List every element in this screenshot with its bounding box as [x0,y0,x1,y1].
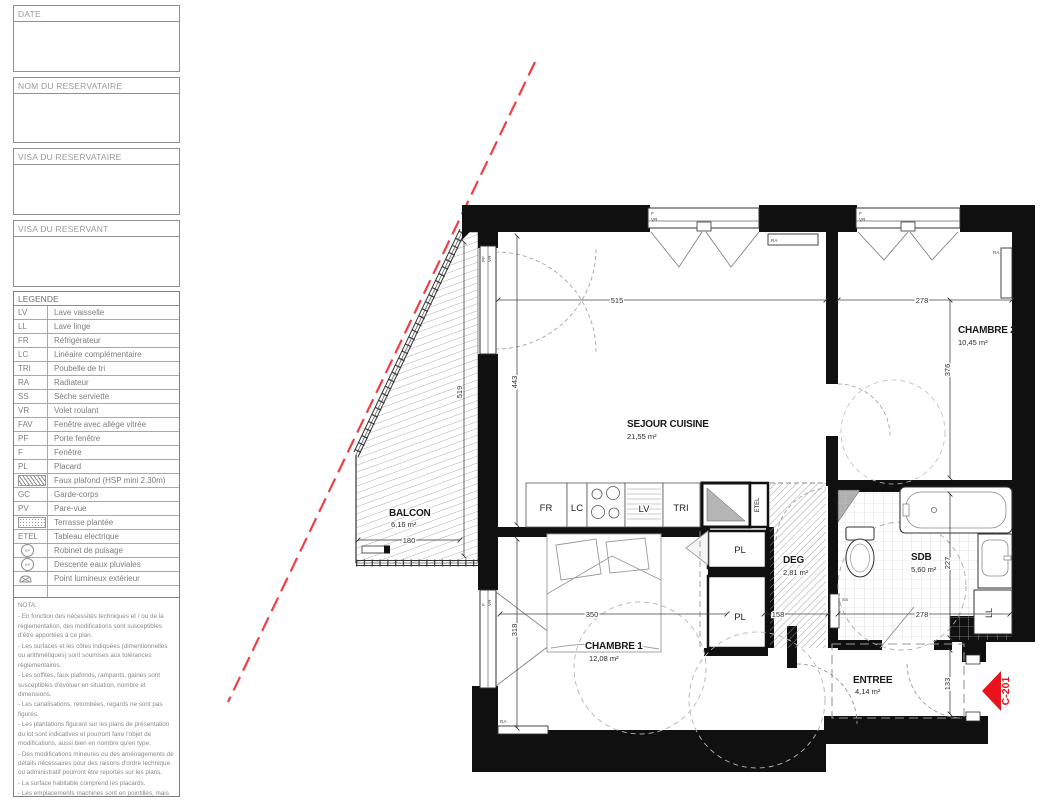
nota-line: - La surface habitable comprend les plac… [18,779,175,788]
legend-abbr [14,516,48,529]
legend-abbr: PV [14,502,48,515]
window-chambre2: F VR [856,208,960,260]
legend-label: Tableau electrique [48,532,119,541]
toilet [846,527,874,577]
sink-vanity [978,534,1012,588]
nota-line: - Des modifications mineures ou des amén… [18,750,175,778]
room-area-deg: 2,81 m² [783,568,809,577]
room-label-entree: ENTREE [853,675,893,686]
kitchen-units: FR LC LV TRI ETEL [526,483,768,527]
legend-label: Lave linge [48,322,90,331]
titleblock-visa-reservant-label: VISA DU RESERVANT [14,221,179,237]
radiator-chambre1 [498,726,548,734]
legend-label: Faux plafond (HSP mini 2.30m) [48,476,165,485]
legend-label: Fenêtre avec allège vitrée [48,420,146,429]
legend-label: Radiateur [48,378,89,387]
legend-abbr: TRI [14,362,48,375]
dishwasher: LV [625,483,663,527]
legend-title: LEGENDE [14,292,179,306]
nota-line: - Les soffites, faux plafonds, rampants,… [18,671,175,699]
nota-line: - Les canalisations, retombées, regards … [18,700,175,719]
window-label-pf: PF [481,256,486,262]
hatch-swatch-icon [18,475,46,486]
dim-deg-width: 158 [772,610,785,619]
entrance-door-swing [907,664,962,718]
window-label-f: F [859,211,862,216]
dim-balcon-height: 519 [455,386,464,399]
room-label-chambre2: CHAMBRE 2 [958,325,1016,336]
ll-label: LL [984,608,994,618]
legend-row-gc: GCGarde-corps [14,488,179,502]
window-label-f: F [481,603,486,606]
nota-line: - Les emplacements machines sont en poin… [18,789,175,797]
electrical-panel: ETEL [750,483,768,527]
legend-abbr: LV [14,306,48,319]
legend-row-ra: RARadiateur [14,376,179,390]
legend-row-terrasse: Terrasse plantée [14,516,179,530]
placard-label: PL [734,612,746,623]
legend-row-etel: ETELTableau electrique [14,530,179,544]
dim-sdb-width: 278 [916,610,929,619]
duct-box [702,483,750,527]
legend-abbr: VR [14,404,48,417]
dim-sdb-height: 227 [943,557,952,570]
dim-chambre1-height: 318 [510,624,519,637]
dim-balcon-width: 180 [403,536,416,545]
legend-row-ll: LLLave linge [14,320,179,334]
legend-row-ss: SSSèche serviette [14,390,179,404]
legend-row-rp: RPRobinet de puisage [14,544,179,558]
dishwasher-label: LV [639,504,651,515]
hob [587,483,625,527]
room-area-entree: 4,14 m² [855,687,881,696]
legend-label: Garde-corps [48,490,98,499]
legend-label: Lave vaisselle [48,308,104,317]
legend-label: Poubelle de tri [48,364,105,373]
legend: LEGENDE LVLave vaisselle LLLave linge FR… [13,291,180,600]
room-area-sejour: 21,55 m² [627,432,657,441]
radiator-label: RA [500,719,507,724]
turning-circle-chambre2 [841,380,945,484]
legend-abbr: GC [14,488,48,501]
bed [547,534,661,652]
window-label-vr: VR [487,255,492,262]
tri-label: TRI [673,503,688,514]
dim-chambre2-width: 278 [916,296,929,305]
legend-row-tri: TRIPoubelle de tri [14,362,179,376]
section-marker-label: C-201 [1000,677,1012,706]
legend-abbr: EP [14,558,48,571]
legend-row-pv: PVPare-vue [14,502,179,516]
legend-label: Sèche serviette [48,392,109,401]
legend-row-pf: PFPorte fenêtre [14,432,179,446]
nota-box: NOTA: - En fonction des nécessités techn… [13,597,180,797]
dim-sejour-height: 443 [510,376,519,389]
titleblock-nom-box: NOM DU RESERVATAIRE [13,77,180,143]
window-sejour: F VR [648,208,759,267]
titleblock-date-box: DATE [13,5,180,72]
etel-label: ETEL [755,497,761,513]
legend-abbr: RA [14,376,48,389]
nota-title: NOTA: [18,601,175,610]
section-marker: C-201 [982,671,1012,711]
legend-abbr: LL [14,320,48,333]
legend-abbr: FAV [14,418,48,431]
legend-row-f: FFenêtre [14,446,179,460]
titleblock-visa-reservataire-box: VISA DU RESERVATAIRE [13,148,180,215]
legend-label: Point lumineux extérieur [48,574,140,583]
legend-abbr: PL [14,460,48,473]
window-label-vr: VR [859,217,866,222]
room-label-sdb: SDB [911,552,932,563]
downpipe-icon: EP [21,558,34,571]
room-label-balcon: BALCON [389,508,431,519]
placard-label: PL [734,545,746,556]
floorplan-sheet: BALCON 6,16 m² 180 519 [0,0,1046,800]
legend-abbr [14,572,48,585]
legend-row-lc: LCLinéaire complémentaire [14,348,179,362]
legend-row-lv: LVLave vaisselle [14,306,179,320]
nota-line: - En fonction des nécessités techniques … [18,612,175,640]
room-area-balcon: 6,16 m² [391,520,417,529]
bathtub [900,487,1012,533]
window-label-f: F [651,211,654,216]
legend-row-pl: PLPlacard [14,460,179,474]
legend-abbr: FR [14,334,48,347]
legend-row-vr: VRVolet roulant [14,404,179,418]
door-hinge [966,712,980,721]
room-label-deg: DEG [783,555,804,566]
titleblock-date-label: DATE [14,6,179,22]
radiator-label: RA [993,250,1000,255]
legend-abbr: PF [14,432,48,445]
dim-chambre1-width: 350 [586,610,599,619]
legend-label: Linéaire complémentaire [48,350,142,359]
door-hinge [966,655,980,664]
legend-row-faux-plafond: Faux plafond (HSP mini 2.30m) [14,474,179,488]
section-marker-arrow-icon [982,671,1001,711]
legend-label: Placard [48,462,81,471]
legend-label: Robinet de puisage [48,546,123,555]
room-area-sdb: 5,60 m² [911,565,937,574]
dim-chambre2-height: 376 [943,364,952,377]
balcony: BALCON 6,16 m² 180 519 [354,229,478,566]
window-chambre1: F VR [480,590,558,688]
legend-label: Descente eaux pluviales [48,560,141,569]
legend-abbr: LC [14,348,48,361]
legend-abbr [14,474,48,487]
legend-abbr: RP [14,544,48,557]
door-swing-chambre1 [797,664,857,724]
exterior-light-icon [18,574,33,584]
legend-label: Fenêtre [48,448,82,457]
tap-icon: RP [21,544,34,557]
bathroom: LL SDB 5,60 m² [838,487,1012,650]
balcony-bench [362,546,386,553]
legend-label: Pare-vue [48,504,86,513]
legend-row-fav: FAVFenêtre avec allège vitrée [14,418,179,432]
fridge-label: FR [540,503,553,514]
titleblock-visa-reservataire-label: VISA DU RESERVATAIRE [14,149,179,165]
legend-label: Porte fenêtre [48,434,100,443]
lc-label: LC [571,503,583,514]
nota-line: - Les surfaces et les côtes indiquées (d… [18,642,175,670]
washing-machine: LL [974,590,1012,634]
titleblock-visa-reservant-box: VISA DU RESERVANT [13,220,180,287]
dim-sejour-width: 515 [611,296,624,305]
door-swing-chambre2 [838,384,890,436]
towel-radiator [830,594,839,628]
legend-label: Terrasse plantée [48,518,113,527]
titleblock-nom-label: NOM DU RESERVATAIRE [14,78,179,94]
room-area-chambre1: 12,08 m² [589,654,619,663]
window-label-vr: VR [487,599,492,606]
room-label-sejour: SEJOUR CUISINE [627,419,709,430]
legend-label: Volet roulant [48,406,98,415]
legend-label: Réfrigérateur [48,336,101,345]
room-area-chambre2: 10,45 m² [958,338,988,347]
dim-entree-height: 133 [943,678,952,691]
legend-abbr: ETEL [14,530,48,543]
room-label-chambre1: CHAMBRE 1 [585,641,643,652]
legend-abbr: SS [14,390,48,403]
radiator-label: RA [771,238,778,243]
dots-swatch-icon [18,517,46,528]
window-label-vr: VR [651,217,658,222]
legend-row-ep: EPDescente eaux pluviales [14,558,179,572]
nota-line: - Les plantations figurant sur les plans… [18,720,175,748]
radiator-chambre2 [1001,248,1012,298]
legend-abbr: F [14,446,48,459]
legend-row-lumineux: Point lumineux extérieur [14,572,179,586]
legend-row-fr: FRRéfrigérateur [14,334,179,348]
